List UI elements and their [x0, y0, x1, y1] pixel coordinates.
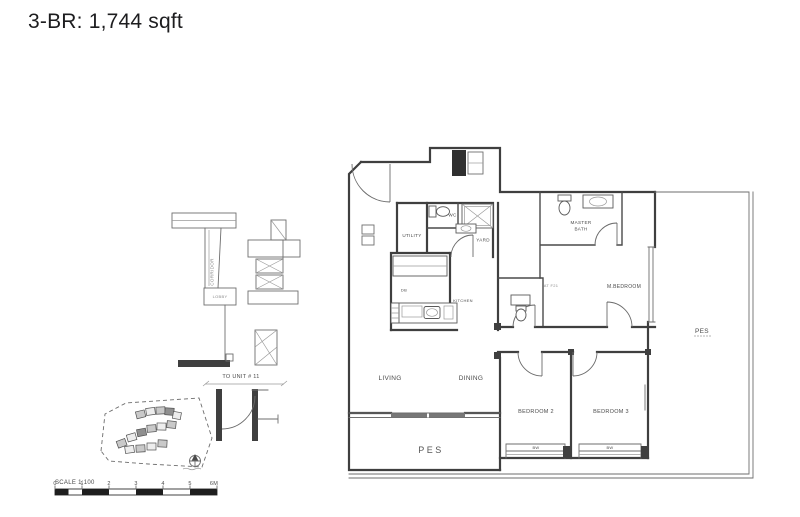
label-master-bath-1: MASTER: [571, 220, 592, 225]
scale-bar: SCALE 1:100 0 1 2 3 4 5 6M: [53, 480, 218, 495]
wc-toilet: [429, 206, 450, 217]
label-dining: DINING: [459, 375, 484, 382]
site-plan: [101, 398, 212, 470]
scale-tick-3: 3: [134, 481, 137, 487]
label-kitchen: KITCHEN: [453, 298, 473, 303]
label-pes-bottom: PES: [418, 445, 444, 455]
label-db: DB: [401, 288, 407, 293]
floor-plan-page: 3-BR: 1,744 sqft: [0, 0, 800, 517]
scale-label: SCALE 1:100: [55, 480, 95, 486]
label-bedroom3: BEDROOM 3: [593, 409, 629, 415]
label-living: LIVING: [378, 375, 401, 382]
dimension-line: [203, 381, 287, 386]
scale-tick-4: 4: [161, 481, 164, 487]
scale-tick-5: 5: [188, 481, 191, 487]
floor-plan-canvas: CORRIDOR LOBBY TO UNIT # 11: [0, 0, 800, 517]
scale-tick-2: 2: [107, 481, 110, 487]
fixtures: [391, 195, 613, 323]
label-bedroom2: BEDROOM 2: [518, 409, 554, 415]
label-master-bedroom: M.BEDROOM: [607, 284, 641, 290]
label-bw-bedroom2: BW: [532, 445, 539, 450]
scale-tick-0: 0: [53, 481, 56, 487]
label-master-bath-2: BATH: [574, 227, 587, 232]
corridor-label: CORRIDOR: [210, 258, 215, 286]
label-unit-ref: AT F21: [544, 283, 559, 288]
road-label-squiggle: [183, 468, 201, 470]
entry-door-assembly: [178, 354, 278, 441]
scale-ruler: [55, 486, 217, 495]
key-plan: CORRIDOR LOBBY TO UNIT # 11: [172, 213, 300, 441]
scale-tick-6: 6M: [210, 481, 218, 487]
bay-windows: [506, 444, 648, 458]
scale-tick-1: 1: [80, 481, 83, 487]
lift-shafts: [248, 220, 300, 304]
key-plan-structure: [172, 213, 300, 365]
building-cluster: [116, 407, 181, 454]
label-bw-bedroom3: BW: [606, 445, 613, 450]
master-bath-fixtures: [558, 195, 613, 215]
main-unit-plan: UTILITY WC YARD KITCHEN DB MASTER BATH M…: [349, 148, 753, 478]
lobby-label: LOBBY: [213, 294, 228, 299]
to-unit-label: TO UNIT # 11: [222, 374, 259, 380]
label-pes-right: PES: [695, 328, 709, 335]
label-utility: UTILITY: [402, 233, 421, 238]
bath2-fixtures: [511, 295, 530, 321]
label-wc: WC: [448, 213, 457, 218]
north-compass-icon: [190, 454, 201, 467]
label-yard: YARD: [476, 238, 490, 243]
service-shaft: [452, 150, 483, 176]
